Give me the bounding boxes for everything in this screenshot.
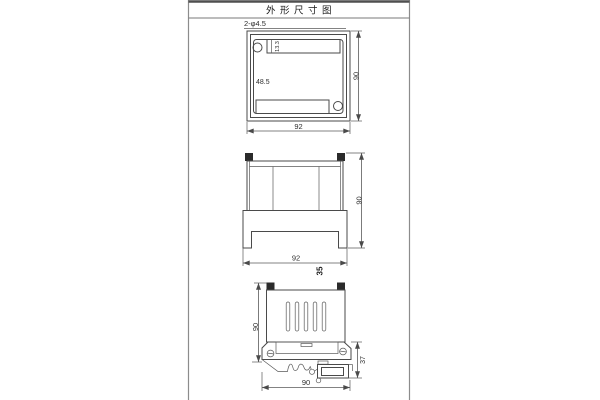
channel-tab xyxy=(301,344,312,347)
top-view-width-dimension: 92 xyxy=(247,122,350,134)
front-view-height-label: 90 xyxy=(355,196,364,204)
inner-height-label: 48.5 xyxy=(256,79,270,86)
notch-depth-label: 13.3 xyxy=(275,41,281,52)
terminal-block-right xyxy=(337,153,345,161)
side-view-clip-label: 37 xyxy=(360,356,367,364)
front-view: 92 90 35 xyxy=(243,153,365,275)
top-view-notch-dimension: 13.3 xyxy=(272,40,282,53)
spring-clip xyxy=(262,360,318,375)
page-title: 外形尺寸图 xyxy=(266,5,336,17)
dimension-drawing-svg: 外形尺寸图 2-φ4.5 13.3 48.5 92 xyxy=(0,0,600,400)
side-view-width-dimension: 90 xyxy=(262,372,350,391)
screw-left xyxy=(267,350,274,357)
mounting-hole-bottom-right xyxy=(334,102,343,111)
din-clip-base xyxy=(262,342,351,360)
top-view-height-dimension: 90 xyxy=(351,31,362,121)
screw-right xyxy=(340,348,347,355)
top-view-width-label: 92 xyxy=(294,122,302,131)
top-view-rim-rect xyxy=(251,35,347,118)
sheet-frame xyxy=(189,0,410,400)
front-view-width-dimension: 92 xyxy=(243,248,347,266)
terminal-block-left xyxy=(245,153,253,161)
front-view-height-dimension: 90 xyxy=(346,153,365,248)
vent-slots xyxy=(286,302,326,331)
side-view-height-dimension: 90 xyxy=(251,283,267,362)
drawing-sheet: 外形尺寸图 2-φ4.5 13.3 48.5 92 xyxy=(0,0,600,400)
side-view-width-label: 90 xyxy=(302,378,310,387)
top-view-bottom-notch xyxy=(256,100,329,114)
side-terminal-right xyxy=(337,283,345,291)
front-view-depth-label: 35 xyxy=(316,266,325,275)
hole-callout-label: 2-φ4.5 xyxy=(244,19,266,28)
front-view-base xyxy=(243,211,347,249)
side-view: 90 37 90 xyxy=(251,283,367,392)
top-view-outer-rect xyxy=(247,31,350,121)
mounting-hole-top-left xyxy=(253,43,262,52)
top-view-height-label: 90 xyxy=(352,72,361,80)
side-terminal-left xyxy=(267,283,275,291)
top-view: 2-φ4.5 13.3 48.5 92 xyxy=(244,19,362,134)
front-view-width-label: 92 xyxy=(292,254,300,263)
side-view-body xyxy=(267,290,346,342)
din-rail-profile xyxy=(316,361,352,383)
side-view-height-label: 90 xyxy=(251,323,260,331)
